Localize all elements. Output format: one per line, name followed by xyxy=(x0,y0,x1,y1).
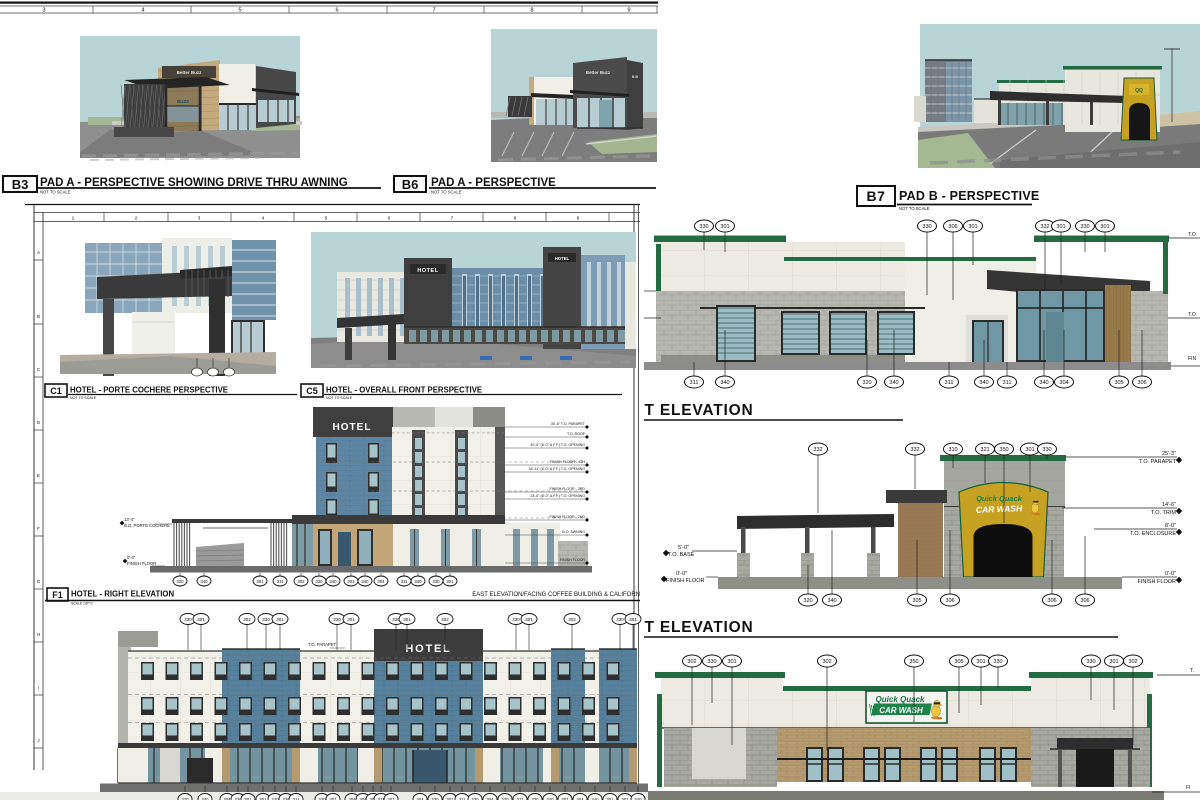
svg-text:A: A xyxy=(37,250,40,255)
svg-text:9: 9 xyxy=(627,8,630,14)
svg-text:5: 5 xyxy=(325,216,328,222)
svg-text:T.O. PARAPET: T.O. PARAPET xyxy=(308,642,337,647)
svg-text:B6: B6 xyxy=(402,177,419,192)
svg-text:0'-0": 0'-0" xyxy=(1165,571,1176,577)
svg-text:340: 340 xyxy=(979,380,988,386)
svg-text:B3: B3 xyxy=(12,177,29,192)
svg-text:QQ: QQ xyxy=(1135,88,1143,94)
svg-text:301: 301 xyxy=(720,224,729,230)
svg-text:1: 1 xyxy=(72,216,75,222)
svg-text:CAR WASH: CAR WASH xyxy=(976,503,1023,515)
svg-text:13'-4": 13'-4" xyxy=(124,517,135,522)
svg-text:T.O: T.O xyxy=(1188,312,1196,318)
svg-text:340: 340 xyxy=(720,380,729,386)
svg-text:304: 304 xyxy=(1059,380,1068,386)
svg-text:311: 311 xyxy=(690,380,699,386)
svg-text:FINISH FLOOR: FINISH FLOOR xyxy=(1137,579,1176,585)
svg-text:321: 321 xyxy=(980,447,989,453)
svg-text:0'-0": 0'-0" xyxy=(676,571,687,577)
svg-text:302: 302 xyxy=(297,579,305,584)
svg-text:330: 330 xyxy=(512,617,520,622)
svg-text:T.O. ENCLOSURE: T.O. ENCLOSURE xyxy=(1130,531,1176,537)
svg-text:30'-6" T.O. PARAPET: 30'-6" T.O. PARAPET xyxy=(551,422,586,426)
svg-text:340: 340 xyxy=(414,579,422,584)
svg-text:320: 320 xyxy=(803,598,812,604)
svg-text:6: 6 xyxy=(335,8,338,14)
svg-text:332: 332 xyxy=(1040,224,1049,230)
svg-text:301: 301 xyxy=(256,579,264,584)
svg-text:330: 330 xyxy=(616,617,624,622)
svg-text:HOTEL - OVERALL FRONT PERSPECT: HOTEL - OVERALL FRONT PERSPECTIVE xyxy=(326,386,482,395)
svg-text:330: 330 xyxy=(707,659,716,665)
svg-text:B.B: B.B xyxy=(632,75,639,79)
svg-text:302: 302 xyxy=(568,617,576,622)
svg-text:40'-0" (8'-0" A.F.F.) T.O. OP: 40'-0" (8'-0" A.F.F.) T.O. OPENING xyxy=(530,443,585,447)
svg-text:NOT TO SCALE: NOT TO SCALE xyxy=(431,190,462,195)
svg-text:FINISH FLOOR - 2ND: FINISH FLOOR - 2ND xyxy=(549,515,585,519)
svg-text:J: J xyxy=(37,738,39,743)
svg-text:B.O. AWNING: B.O. AWNING xyxy=(562,530,585,534)
svg-text:306: 306 xyxy=(1080,598,1089,604)
svg-text:301: 301 xyxy=(446,579,454,584)
svg-text:330: 330 xyxy=(432,579,440,584)
svg-text:EAST ELEVATION/FACING COFFEE B: EAST ELEVATION/FACING COFFEE BUILDING & … xyxy=(472,592,640,598)
svg-text:7: 7 xyxy=(432,8,435,14)
svg-text:HOTEL - RIGHT ELEVATION: HOTEL - RIGHT ELEVATION xyxy=(71,590,174,599)
svg-text:320: 320 xyxy=(862,380,871,386)
svg-text:330: 330 xyxy=(993,659,1002,665)
svg-text:2: 2 xyxy=(135,216,138,222)
svg-text:I: I xyxy=(38,685,39,690)
svg-text:301: 301 xyxy=(1109,659,1118,665)
svg-text:0'-0": 0'-0" xyxy=(127,555,136,560)
svg-text:Quick Quack: Quick Quack xyxy=(876,695,925,704)
svg-text:330: 330 xyxy=(1080,224,1089,230)
svg-text:F: F xyxy=(37,526,40,531)
svg-text:T.O. TRIM: T.O. TRIM xyxy=(1151,510,1176,516)
svg-text:4: 4 xyxy=(141,8,144,14)
svg-text:305: 305 xyxy=(912,598,921,604)
svg-text:302: 302 xyxy=(822,659,831,665)
svg-text:302: 302 xyxy=(441,617,449,622)
svg-text:FINISH FLOOR: FINISH FLOOR xyxy=(127,561,156,566)
svg-text:CAR WASH: CAR WASH xyxy=(879,706,923,715)
svg-text:FINISH FLOOR: FINISH FLOOR xyxy=(560,558,586,562)
svg-text:330: 330 xyxy=(333,617,341,622)
svg-text:304: 304 xyxy=(377,579,385,584)
svg-text:330: 330 xyxy=(315,579,323,584)
svg-text:302: 302 xyxy=(687,659,696,665)
svg-text:24'-0" (8'-0" A.F.F.) T.O. OP: 24'-0" (8'-0" A.F.F.) T.O. OPENING xyxy=(530,494,585,498)
svg-text:301: 301 xyxy=(727,659,736,665)
svg-text:H: H xyxy=(37,632,40,637)
svg-text:305: 305 xyxy=(954,659,963,665)
svg-text:306: 306 xyxy=(1047,598,1056,604)
svg-text:8: 8 xyxy=(530,8,533,14)
svg-text:PAD B - PERSPECTIVE: PAD B - PERSPECTIVE xyxy=(899,189,1039,203)
svg-text:301: 301 xyxy=(347,579,355,584)
svg-text:311: 311 xyxy=(1003,380,1012,386)
svg-text:350: 350 xyxy=(999,447,1008,453)
svg-text:T.O. PARAPET: T.O. PARAPET xyxy=(1139,459,1177,465)
svg-text:301: 301 xyxy=(1100,224,1109,230)
svg-text:C1: C1 xyxy=(50,386,62,396)
svg-text:330: 330 xyxy=(1042,447,1051,453)
svg-text:301: 301 xyxy=(1056,224,1065,230)
svg-text:25'-3": 25'-3" xyxy=(1162,451,1176,457)
svg-text:305: 305 xyxy=(1114,380,1123,386)
svg-text:9: 9 xyxy=(577,216,580,222)
svg-text:T ELEVATION: T ELEVATION xyxy=(645,402,754,419)
svg-text:T.O. BASE: T.O. BASE xyxy=(668,552,695,558)
svg-text:FIN: FIN xyxy=(1188,356,1196,362)
svg-text:NOT TO SCALE: NOT TO SCALE xyxy=(899,206,930,211)
svg-text:FINISH FLOOR: FINISH FLOOR xyxy=(666,578,705,584)
svg-text:HOTEL: HOTEL xyxy=(333,422,372,433)
svg-text:3: 3 xyxy=(42,8,45,14)
svg-text:FI: FI xyxy=(1186,785,1190,791)
svg-text:311: 311 xyxy=(277,579,284,584)
svg-text:E: E xyxy=(37,473,40,478)
svg-text:5'-0": 5'-0" xyxy=(678,545,689,551)
svg-text:340: 340 xyxy=(200,579,208,584)
svg-text:320: 320 xyxy=(176,579,184,584)
svg-text:306: 306 xyxy=(1137,380,1146,386)
svg-text:306: 306 xyxy=(945,598,954,604)
svg-text:301: 301 xyxy=(525,617,533,622)
svg-text:302: 302 xyxy=(1128,659,1137,665)
svg-text:T.O: T.O xyxy=(1188,232,1196,238)
svg-text:T.O. ROOF: T.O. ROOF xyxy=(567,432,586,436)
svg-text:B: B xyxy=(37,314,40,319)
svg-text:C5: C5 xyxy=(306,386,318,396)
svg-text:HOTEL - PORTE COCHERE PERSPECT: HOTEL - PORTE COCHERE PERSPECTIVE xyxy=(70,386,228,395)
svg-text:330: 330 xyxy=(184,617,192,622)
svg-text:8'-0": 8'-0" xyxy=(1165,523,1176,529)
svg-text:301: 301 xyxy=(1025,447,1034,453)
svg-text:3: 3 xyxy=(198,216,201,222)
svg-text:330: 330 xyxy=(922,224,931,230)
svg-text:340: 340 xyxy=(329,579,337,584)
svg-text:350: 350 xyxy=(909,659,918,665)
svg-text:340: 340 xyxy=(1039,380,1048,386)
svg-text:6: 6 xyxy=(388,216,391,222)
svg-text:340: 340 xyxy=(827,598,836,604)
svg-text:4: 4 xyxy=(262,216,265,222)
svg-text:301: 301 xyxy=(276,617,284,622)
svg-text:301: 301 xyxy=(347,617,355,622)
svg-text:330: 330 xyxy=(1086,659,1095,665)
svg-text:302: 302 xyxy=(243,617,251,622)
svg-text:T ELEVATION: T ELEVATION xyxy=(645,619,754,636)
svg-text:14'-6": 14'-6" xyxy=(1162,502,1176,508)
svg-text:B7: B7 xyxy=(867,188,886,204)
svg-text:Better Buzz: Better Buzz xyxy=(177,70,203,75)
svg-text:306: 306 xyxy=(948,224,957,230)
svg-text:G: G xyxy=(37,579,41,584)
svg-text:330: 330 xyxy=(262,617,270,622)
svg-text:FINISH FLOOR - 4TH: FINISH FLOOR - 4TH xyxy=(550,460,586,464)
svg-text:T.: T. xyxy=(1190,668,1194,674)
svg-text:311: 311 xyxy=(945,380,954,386)
svg-text:NOT TO SCALE: NOT TO SCALE xyxy=(70,396,97,400)
svg-text:NOT TO SCALE: NOT TO SCALE xyxy=(326,396,353,400)
svg-text:332: 332 xyxy=(910,447,919,453)
svg-text:332: 332 xyxy=(813,447,822,453)
svg-text:Quick Quack: Quick Quack xyxy=(976,494,1023,503)
svg-text:HOTEL: HOTEL xyxy=(417,268,438,274)
svg-text:330: 330 xyxy=(699,224,708,230)
svg-text:F1: F1 xyxy=(52,590,63,600)
svg-text:301: 301 xyxy=(976,659,985,665)
svg-text:SCALE 1/8"=1': SCALE 1/8"=1' xyxy=(71,602,94,606)
svg-text:7: 7 xyxy=(451,216,454,222)
svg-text:HOTEL: HOTEL xyxy=(555,256,570,261)
svg-text:301: 301 xyxy=(629,617,637,622)
svg-text:FINISH FLOOR - 3RD: FINISH FLOOR - 3RD xyxy=(549,487,585,491)
svg-text:301: 301 xyxy=(403,617,411,622)
svg-text:340: 340 xyxy=(361,579,369,584)
svg-text:Better Buzz: Better Buzz xyxy=(586,70,611,75)
svg-text:8: 8 xyxy=(514,216,517,222)
svg-text:34'-11" (8'-0" A.F.F.) T.O. O: 34'-11" (8'-0" A.F.F.) T.O. OPENING xyxy=(529,467,586,471)
svg-text:NOT TO SCALE: NOT TO SCALE xyxy=(40,190,71,195)
svg-text:311: 311 xyxy=(401,579,408,584)
svg-text:301: 301 xyxy=(197,617,205,622)
svg-text:5: 5 xyxy=(238,8,241,14)
svg-text:340: 340 xyxy=(889,380,898,386)
svg-text:HOTEL: HOTEL xyxy=(405,643,451,655)
svg-text:301: 301 xyxy=(968,224,977,230)
svg-text:310: 310 xyxy=(948,447,957,453)
